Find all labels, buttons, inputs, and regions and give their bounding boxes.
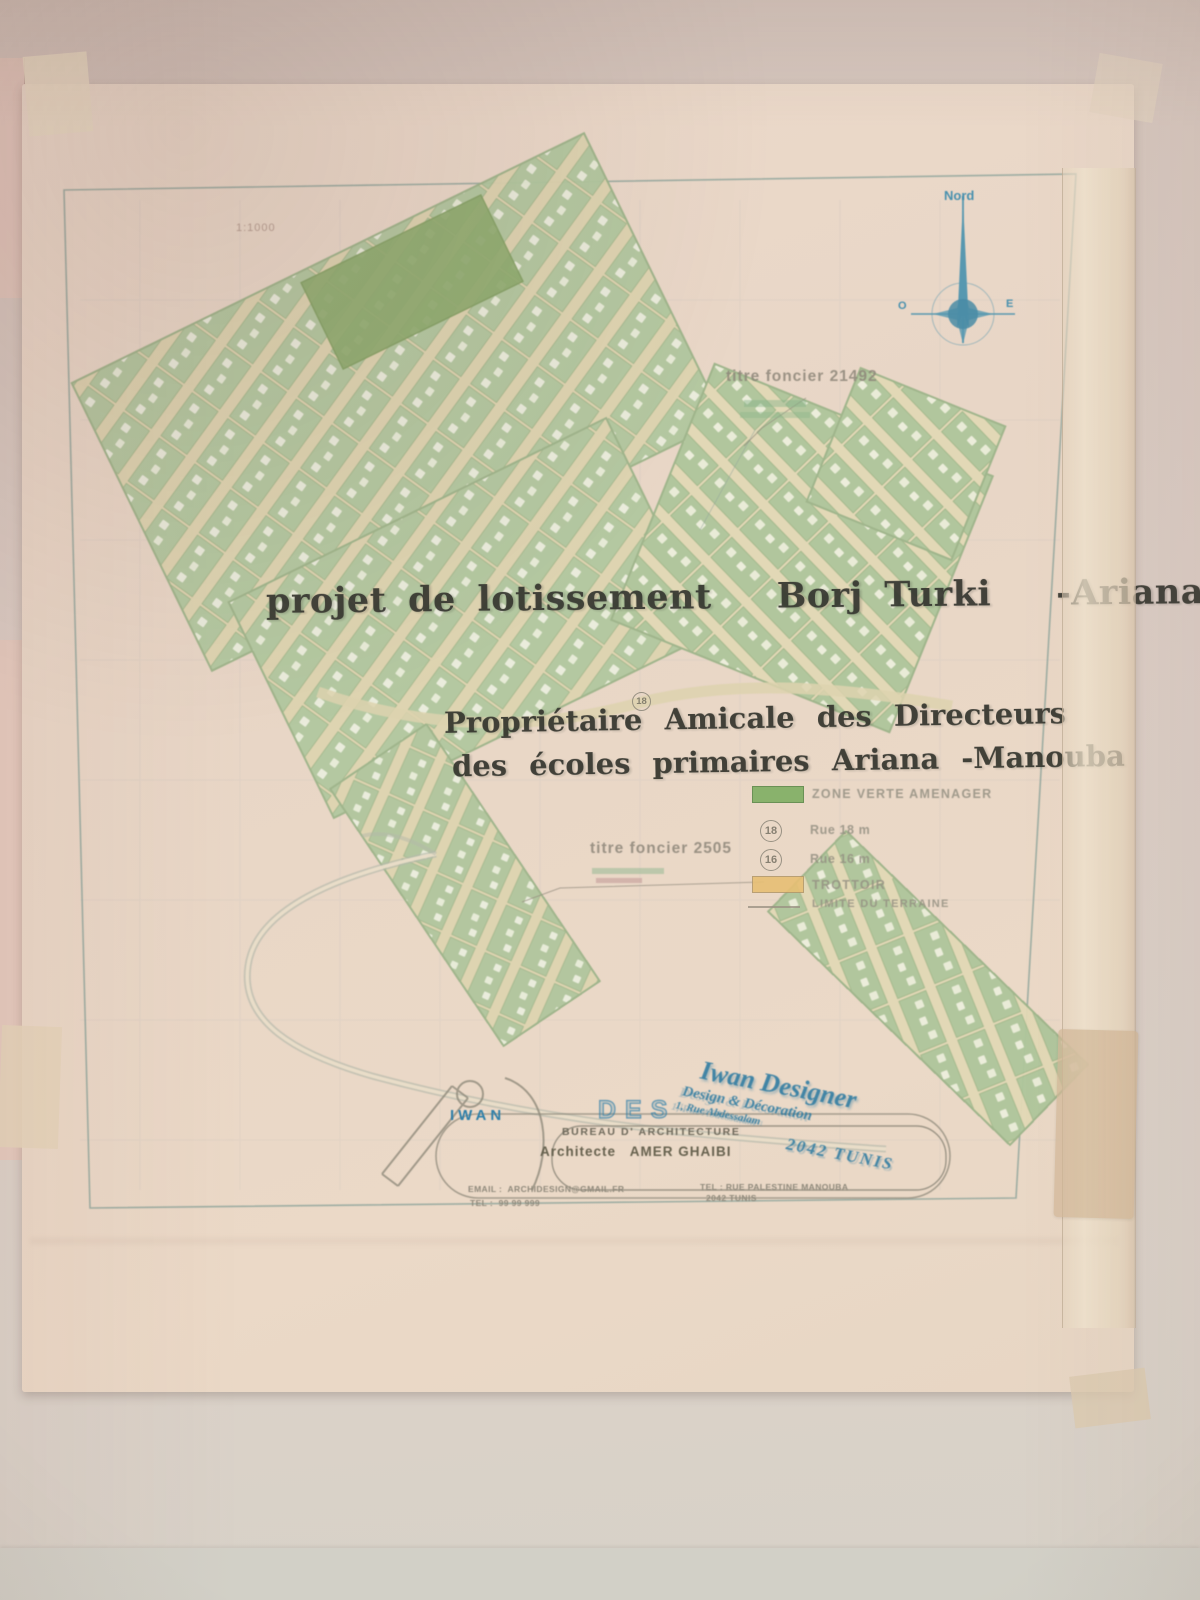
address-line1: TEL : RUE PALESTINE MANOUBA — [700, 1182, 848, 1192]
legend-rue18-badge: 18 — [760, 820, 782, 842]
legend-zone-verte-label: ZONE VERTE AMENAGER — [812, 787, 993, 801]
parcel-fields — [72, 133, 1088, 1145]
legend-rue18-label: Rue 18 m — [810, 823, 870, 837]
address-line2: 2042 TUNIS — [706, 1193, 757, 1203]
scale-note: 1:1000 — [236, 222, 276, 234]
iwan-logo-text: IWAN — [450, 1107, 505, 1124]
des-outline-text: DES — [598, 1096, 676, 1125]
titre-foncier-2505: titre foncier 2505 — [590, 840, 732, 858]
legend-trottoir-label: TROTTOIR — [812, 878, 886, 892]
compass-west-label: O — [898, 300, 907, 312]
tape-top-right — [1089, 53, 1162, 123]
compass-rose-icon — [911, 196, 1015, 345]
tape-bottom-left — [0, 1025, 62, 1149]
legend-rue16-label: Rue 16 m — [810, 852, 870, 866]
tel-line: TEL : 99 99 999 — [470, 1198, 540, 1208]
tape-right-dark-piece — [1054, 1029, 1139, 1219]
compass-east-label: E — [1006, 298, 1013, 310]
titre-foncier-21492: titre foncier 21492 — [726, 368, 878, 386]
map-graphic — [0, 0, 1200, 1600]
photo-of-subdivision-plan: 1:1000 Nord O E titre foncier 21492 titr… — [0, 0, 1200, 1600]
email-line: EMAIL : ARCHIDESIGN@GMAIL.FR — [468, 1184, 624, 1194]
tape-bottom-right — [1069, 1368, 1151, 1429]
north-label: Nord — [944, 188, 974, 203]
legend-zone-verte-swatch — [752, 786, 804, 803]
wall-ledge — [0, 1548, 1200, 1600]
legend-rue16-badge: 16 — [760, 849, 782, 871]
legend-limite-line — [748, 906, 800, 908]
tape-top-left — [23, 51, 94, 136]
architect-name: Architecte AMER GHAIBI — [540, 1144, 732, 1159]
legend-trottoir-swatch — [752, 876, 804, 893]
pencil-logo-icon — [382, 1078, 544, 1190]
legend-limite-label: LIMITE DU TERRAINE — [812, 898, 950, 910]
